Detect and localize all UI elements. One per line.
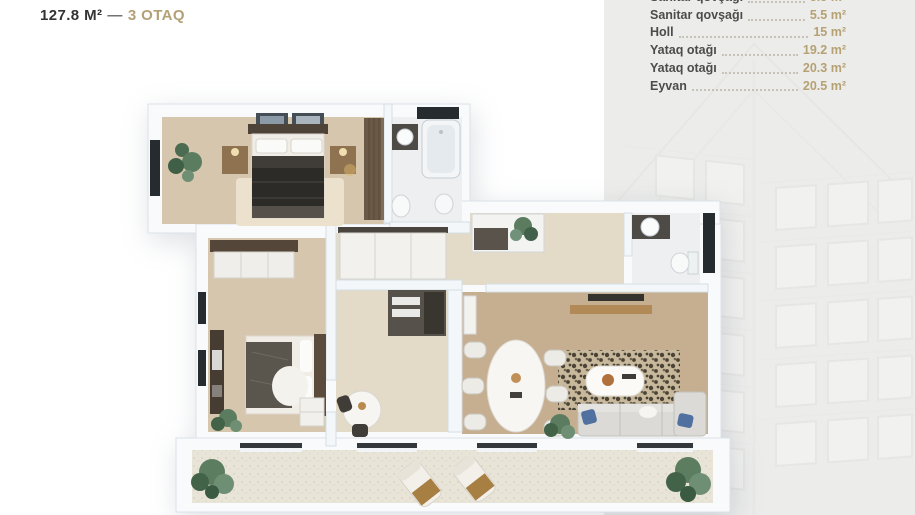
total-area-value: 127.8 M² <box>40 7 102 24</box>
room-area-value: 19.2 m² <box>803 44 846 57</box>
room-list-row: Yataq otağı 20.3 m² <box>650 59 846 77</box>
closet <box>340 233 446 279</box>
coffee-table <box>586 366 644 396</box>
room-label: Yataq otağı <box>650 62 717 75</box>
pillow <box>300 340 312 372</box>
bidet <box>435 194 453 214</box>
room-area-value: 5.5 m² <box>810 9 846 22</box>
room-count-label: 3 OTAQ <box>128 7 185 24</box>
credenza <box>464 296 476 334</box>
lamp <box>339 148 347 156</box>
plan-title: 127.8 M²—3 OTAQ <box>40 7 185 24</box>
dotted-leader <box>692 80 798 91</box>
room-label: Sanitar qovşağı <box>650 0 743 4</box>
dotted-leader <box>748 10 805 21</box>
lamp <box>231 148 239 156</box>
page: 127.8 M²—3 OTAQ Sanitar qovşağı 5.5 m² S… <box>0 0 915 515</box>
room-list-row: Yataq otağı 19.2 m² <box>650 42 846 60</box>
bed-headboard <box>248 124 328 134</box>
oval-dining-table <box>487 340 545 432</box>
wardrobe <box>364 118 384 220</box>
tv-bench <box>210 330 224 414</box>
chaise <box>674 392 706 436</box>
room-area-list: Sanitar qovşağı 5.5 m² Sanitar qovşağı 5… <box>650 0 846 95</box>
room-list-row: Eyvan 20.5 m² <box>650 77 846 95</box>
tv <box>588 294 644 301</box>
tv-console <box>570 305 652 314</box>
toilet <box>392 195 410 217</box>
floor-plan <box>140 95 740 515</box>
dotted-leader <box>679 27 809 38</box>
dotted-leader <box>722 45 798 56</box>
room-label: Eyvan <box>650 80 687 93</box>
room-area-value: 20.5 m² <box>803 80 846 93</box>
room-area-value: 20.3 m² <box>803 62 846 75</box>
pillow <box>291 139 322 153</box>
chair <box>352 424 368 437</box>
room-list-row: Sanitar qovşağı 5.5 m² <box>650 6 846 24</box>
toilet <box>671 253 689 273</box>
dash-separator: — <box>107 7 122 24</box>
wardrobe <box>210 240 298 252</box>
room-label: Sanitar qovşağı <box>650 9 743 22</box>
pillow <box>639 406 657 418</box>
dotted-leader <box>722 63 798 74</box>
sink <box>641 218 659 236</box>
room-area-value: 5.5 m² <box>810 0 846 4</box>
room-list-row: Holl 15 m² <box>650 24 846 42</box>
floor-balcony <box>192 450 713 503</box>
sink <box>397 129 413 145</box>
dotted-leader <box>748 0 805 3</box>
room-label: Holl <box>650 26 674 39</box>
room-area-value: 15 m² <box>813 26 846 39</box>
room-label: Yataq otağı <box>650 44 717 57</box>
pillow <box>256 139 287 153</box>
